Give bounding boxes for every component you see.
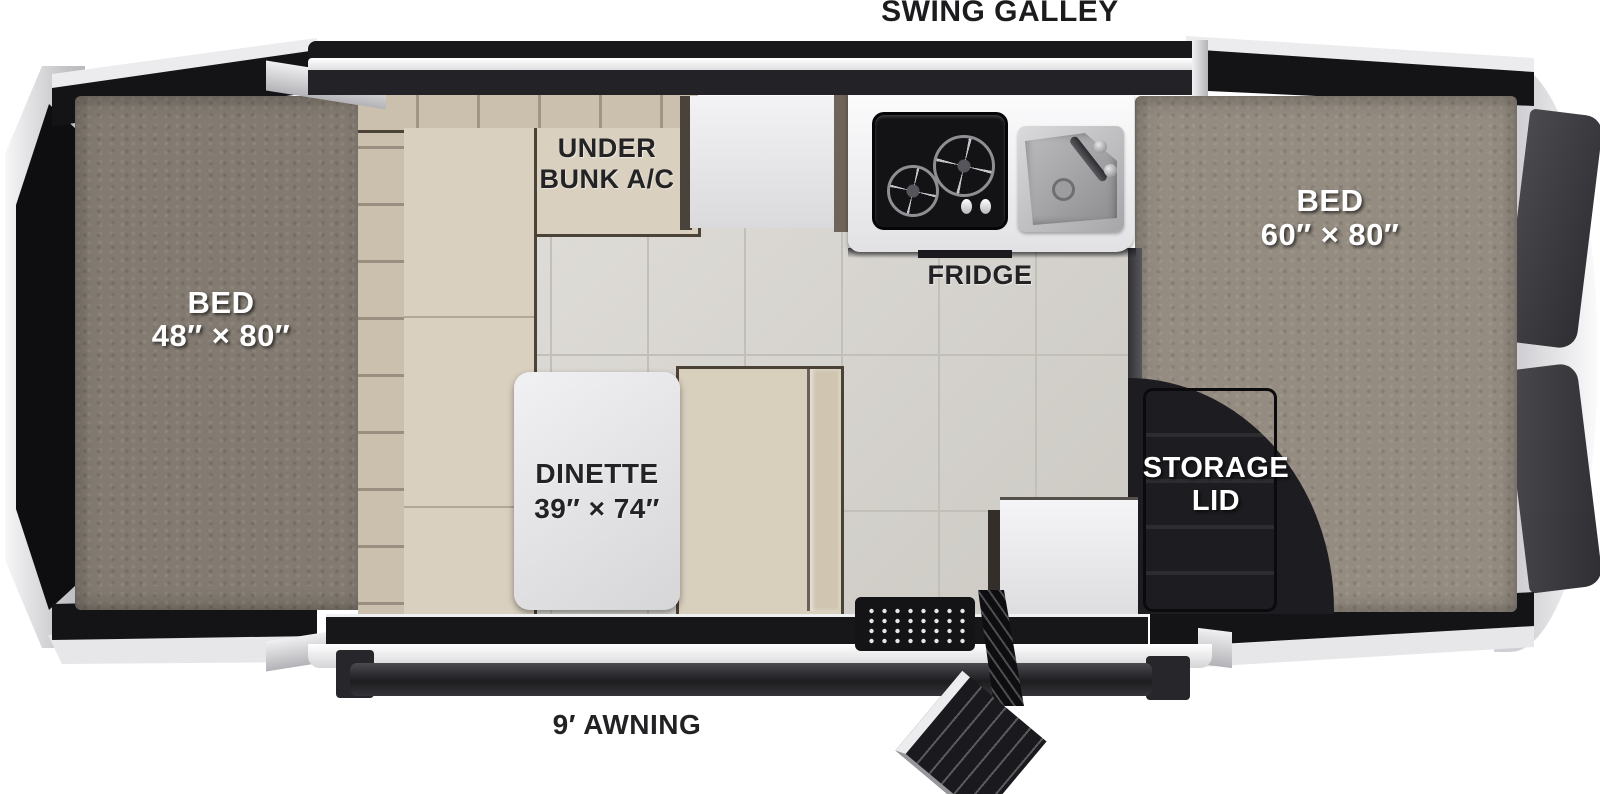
- left-bed-label: BED 48″ × 80″: [75, 286, 367, 352]
- right-bed-size: 60″ × 80″: [1150, 218, 1510, 252]
- faucet-handle-icon: [1094, 140, 1107, 153]
- right-bed-name: BED: [1150, 184, 1510, 218]
- dinette-label: DINETTE 39″ × 74″: [514, 456, 680, 526]
- galley-end-cap: [1192, 40, 1208, 96]
- entry-step-tread-icon: [863, 604, 967, 644]
- bunk-back-cushion-top: [358, 92, 698, 133]
- door-side-cabinet: [1000, 497, 1138, 621]
- dinette-name: DINETTE: [514, 456, 680, 491]
- bunk-back-cushion-left: [358, 92, 409, 616]
- swing-galley-text: SWING GALLEY: [820, 0, 1180, 27]
- cooktop: [872, 112, 1008, 230]
- fridge-label: FRIDGE: [898, 261, 1062, 290]
- left-bed-name: BED: [75, 286, 367, 319]
- under-bunk-ac-line2: BUNK A/C: [512, 164, 702, 195]
- burner-large-icon: [933, 135, 995, 197]
- awning-label: 9′ AWNING: [477, 710, 777, 740]
- faucet-handle-icon: [1104, 164, 1117, 177]
- cooktop-knob: [980, 199, 991, 214]
- storage-lid-line1: STORAGE: [1126, 452, 1306, 485]
- platform-edge-strip: [1126, 248, 1142, 382]
- dinette-bench-back-cushion: [807, 369, 838, 611]
- fridge-text: FRIDGE: [898, 261, 1062, 290]
- left-bed-size: 48″ × 80″: [75, 319, 367, 352]
- right-bed-label: BED 60″ × 80″: [1150, 184, 1510, 252]
- storage-lid-line2: LID: [1126, 485, 1306, 518]
- body-top-wall: [308, 70, 1196, 95]
- under-bunk-ac-label: UNDER BUNK A/C: [512, 133, 702, 195]
- dinette-size: 39″ × 74″: [514, 491, 680, 526]
- body-top-rail: [308, 41, 1196, 59]
- under-bunk-ac-line1: UNDER: [512, 133, 702, 164]
- left-bed-mattress: [75, 96, 367, 610]
- burner-small-icon: [887, 165, 939, 217]
- cooktop-knob: [961, 199, 972, 214]
- storage-lid-label: STORAGE LID: [1126, 452, 1306, 518]
- awning-bracket-right: [1146, 656, 1190, 700]
- sink-drain-icon: [1052, 178, 1075, 201]
- dinette-bench: [676, 366, 844, 620]
- fridge-cabinet-top: [690, 96, 836, 228]
- camper-floorplan: BED 48″ × 80″ BED 60″ × 80″: [0, 0, 1600, 794]
- sink: [1018, 126, 1124, 232]
- awning-text: 9′ AWNING: [477, 710, 777, 740]
- swing-galley-label: SWING GALLEY: [820, 0, 1180, 27]
- under-counter-vent: [918, 250, 1012, 258]
- awning-roller: [350, 663, 1152, 696]
- entry-step: [855, 597, 975, 651]
- left-bed-endcap-panel: [16, 104, 76, 610]
